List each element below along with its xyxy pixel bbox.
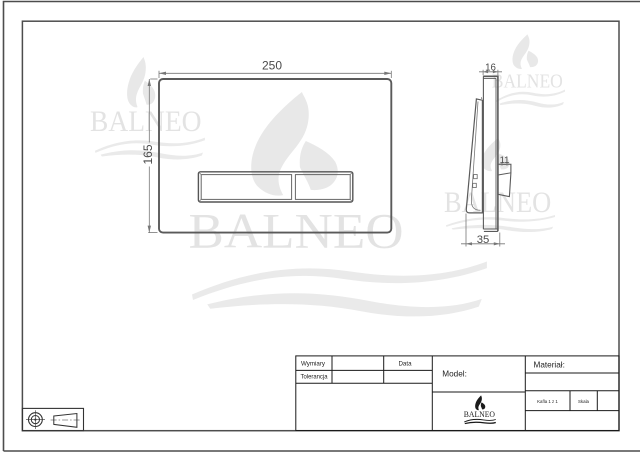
svg-text:16: 16 — [485, 62, 496, 73]
svg-text:Tolerancja: Tolerancja — [301, 373, 329, 380]
svg-text:Kafla 1 z 1: Kafla 1 z 1 — [537, 399, 558, 404]
svg-text:Data: Data — [398, 360, 412, 367]
svg-text:165: 165 — [141, 144, 155, 164]
svg-text:BALNEO: BALNEO — [189, 203, 404, 259]
svg-text:Wymiary: Wymiary — [301, 361, 326, 368]
svg-text:11: 11 — [500, 155, 510, 166]
svg-text:Skala: Skala — [578, 399, 590, 404]
svg-text:250: 250 — [262, 58, 282, 72]
svg-text:BALNEO: BALNEO — [90, 105, 202, 138]
svg-text:BALNEO: BALNEO — [464, 410, 495, 419]
svg-text:BALNEO: BALNEO — [492, 71, 563, 93]
svg-text:Materiał:: Materiał: — [534, 360, 565, 369]
svg-text:Model:: Model: — [442, 370, 467, 379]
svg-text:35: 35 — [477, 234, 490, 246]
